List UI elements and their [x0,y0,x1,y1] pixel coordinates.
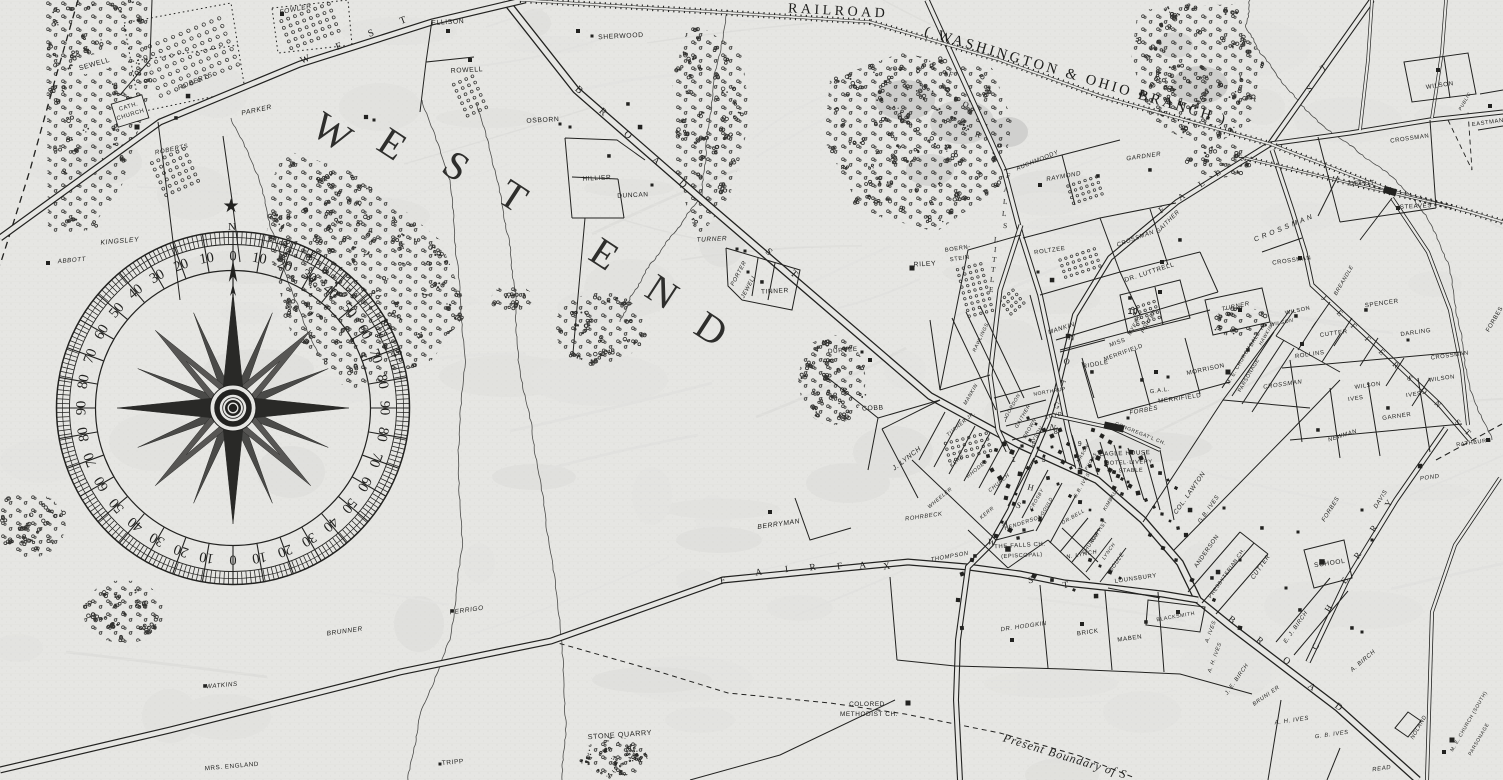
svg-text:F: F [1006,171,1011,180]
svg-text:10: 10 [198,250,215,268]
svg-text:80: 80 [373,373,391,390]
svg-text:10: 10 [251,548,268,566]
svg-text:★: ★ [222,196,239,217]
svg-text:METHODIST CH.: METHODIST CH. [840,711,898,718]
svg-text:80: 80 [373,426,391,443]
svg-text:10: 10 [198,548,215,566]
svg-text:COBB: COBB [862,404,884,412]
svg-text:7: 7 [1004,417,1009,424]
svg-text:80: 80 [75,373,93,390]
svg-text:3: 3 [1042,457,1047,464]
svg-text:8: 8 [1054,429,1059,436]
svg-text:5: 5 [1032,441,1037,448]
svg-text:10: 10 [1128,306,1139,316]
svg-text:10: 10 [251,250,268,268]
svg-text:RILEY: RILEY [913,260,936,268]
svg-text:S: S [1003,221,1008,230]
svg-text:90: 90 [73,401,89,416]
svg-text:80: 80 [75,426,93,443]
svg-text:STABLE: STABLE [1119,468,1144,475]
svg-text:N: N [228,221,236,233]
svg-text:1: 1 [1012,457,1017,464]
svg-text:COLORED: COLORED [849,701,885,708]
svg-text:DEPOT: DEPOT [1349,179,1375,187]
svg-text:90: 90 [377,401,393,416]
svg-text:0: 0 [229,552,236,568]
svg-text:9: 9 [1078,441,1083,448]
svg-text:TINNER: TINNER [761,287,789,295]
